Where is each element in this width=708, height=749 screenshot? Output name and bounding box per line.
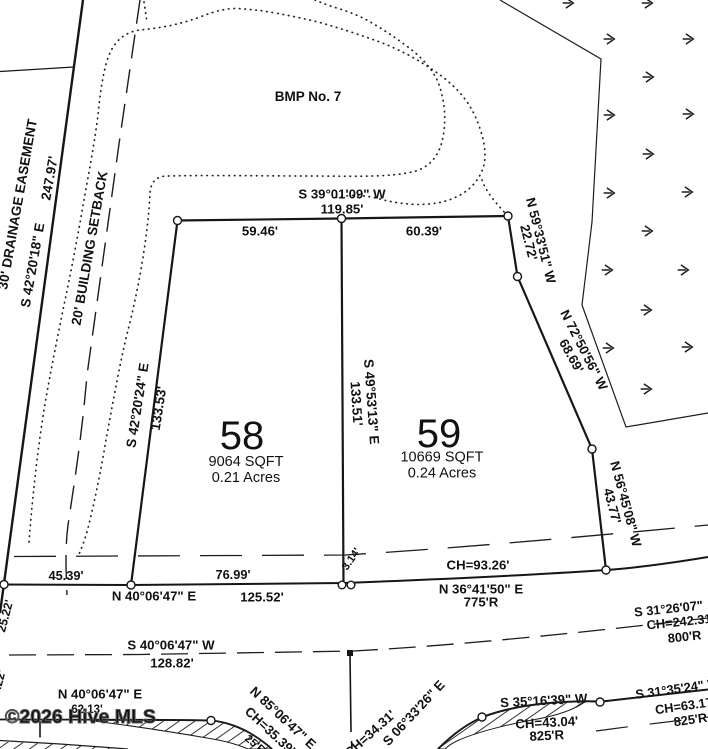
svg-text:45.39': 45.39'	[48, 568, 83, 583]
svg-text:N 40°06'47" E: N 40°06'47" E	[112, 589, 197, 604]
svg-text:S 39°01'09" W: S 39°01'09" W	[298, 187, 386, 202]
svg-text:S 40°06'47" W: S 40°06'47" W	[127, 638, 215, 653]
svg-text:76.99': 76.99'	[215, 567, 250, 582]
svg-text:9064 SQFT: 9064 SQFT	[209, 454, 284, 470]
svg-text:775'R: 775'R	[464, 595, 499, 610]
svg-text:133.51': 133.51'	[347, 381, 365, 426]
svg-text:BMP No. 7: BMP No. 7	[275, 89, 342, 104]
svg-text:N 40°06'47" E: N 40°06'47" E	[58, 687, 143, 702]
svg-text:0.21 Acres: 0.21 Acres	[212, 470, 281, 486]
svg-text:60.39': 60.39'	[406, 224, 442, 239]
svg-text:128.82': 128.82'	[150, 656, 193, 671]
svg-text:58: 58	[220, 414, 265, 458]
svg-text:©2026 Hive MLS: ©2026 Hive MLS	[5, 706, 156, 728]
svg-text:825'R: 825'R	[529, 727, 565, 744]
svg-text:10669 SQFT: 10669 SQFT	[400, 450, 483, 466]
svg-text:59.46': 59.46'	[242, 224, 278, 239]
svg-text:CH=93.26': CH=93.26'	[447, 558, 510, 573]
svg-text:0.24 Acres: 0.24 Acres	[408, 466, 477, 482]
svg-text:125.52': 125.52'	[240, 590, 283, 605]
